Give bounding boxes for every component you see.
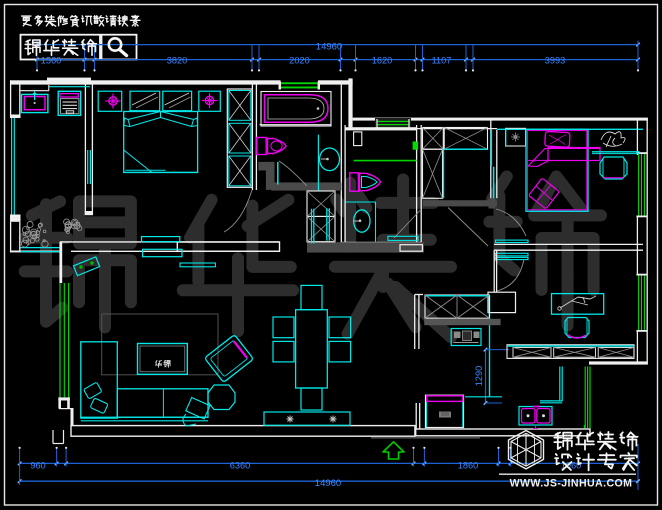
svg-text:6360: 6360 [230, 460, 250, 470]
svg-text:1860: 1860 [458, 460, 478, 470]
svg-text:14960: 14960 [316, 41, 342, 52]
svg-text:1620: 1620 [372, 55, 392, 65]
svg-text:WWW.JS-JINHUA.COM: WWW.JS-JINHUA.COM [510, 478, 633, 490]
svg-text:960: 960 [30, 460, 45, 470]
svg-text:1107: 1107 [432, 55, 452, 65]
svg-text:3993: 3993 [545, 55, 565, 65]
svg-text:3820: 3820 [167, 55, 187, 65]
svg-text:14960: 14960 [315, 478, 341, 489]
svg-text:1290: 1290 [474, 366, 484, 386]
svg-text:2020: 2020 [289, 55, 309, 65]
svg-text:1560: 1560 [41, 55, 61, 65]
